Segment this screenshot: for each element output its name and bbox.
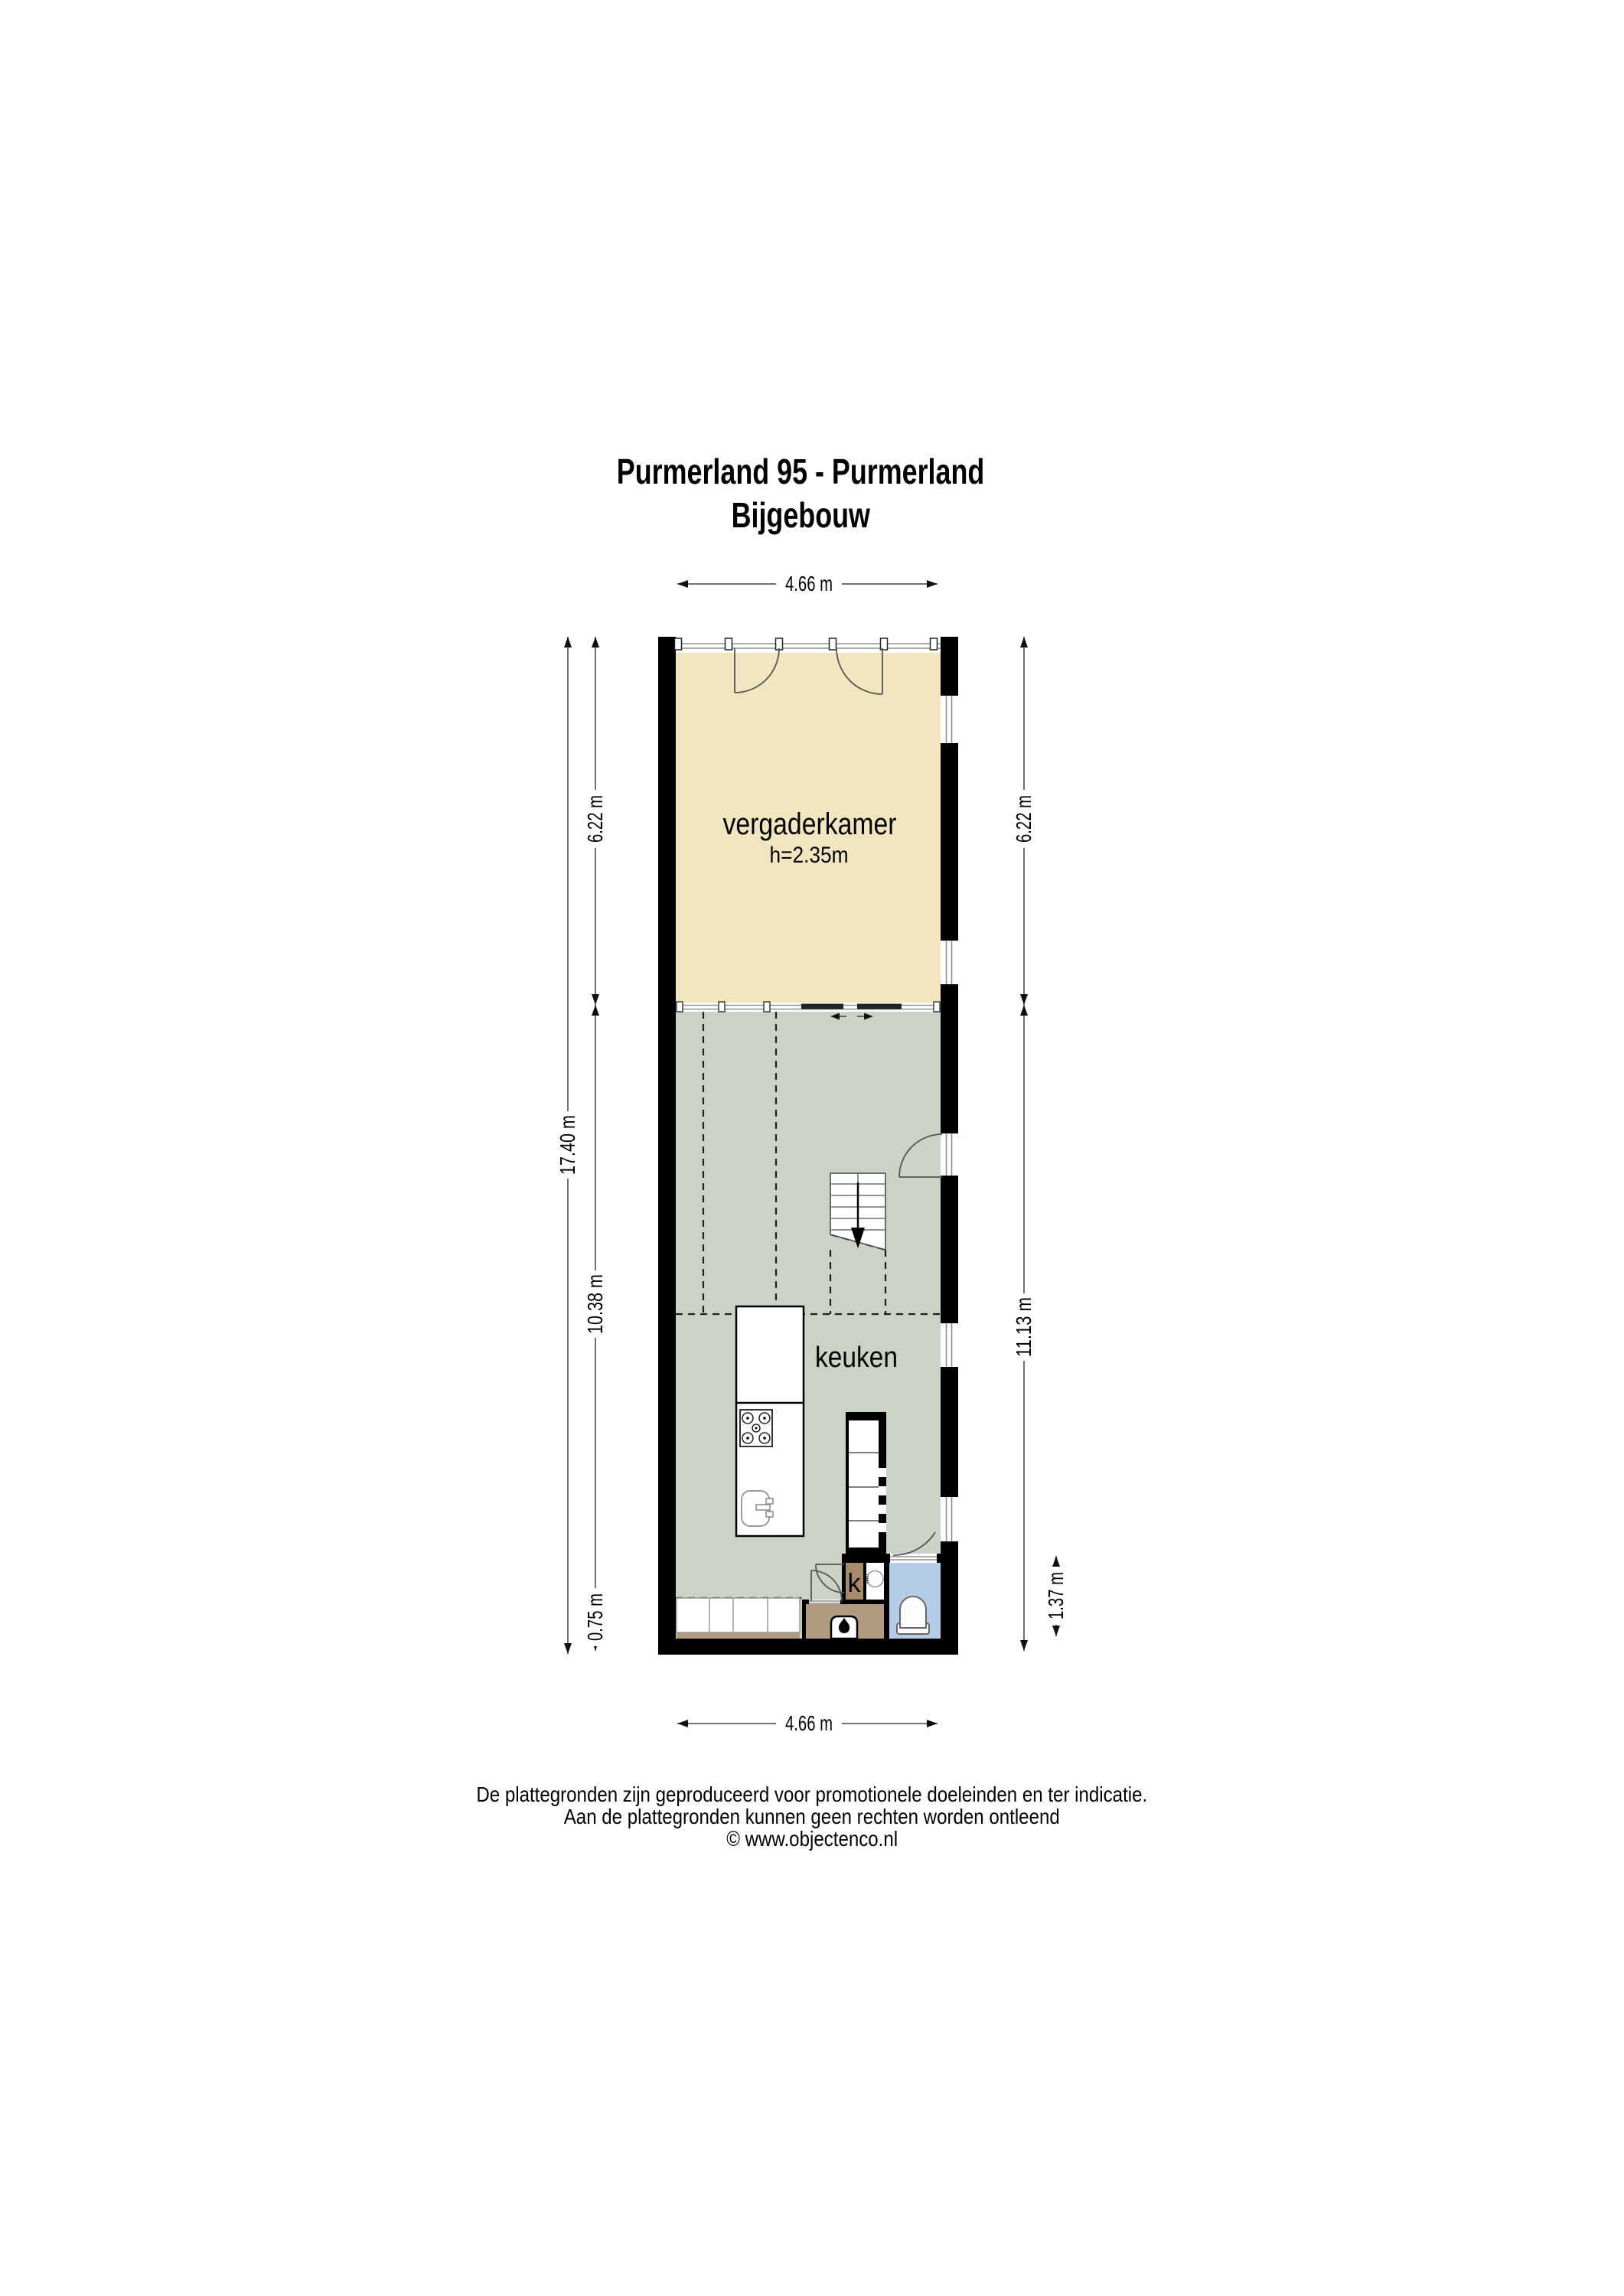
room-keuken (676, 1012, 941, 1639)
glazed-door-opening (941, 1130, 958, 1179)
appliance-counter (846, 1412, 886, 1558)
label-vergaderkamer: vergaderkamer (723, 807, 897, 841)
window (941, 1320, 958, 1370)
dim-left-upper: 6.22 m (583, 795, 607, 843)
sink-icon (742, 1491, 773, 1526)
dim-right-upper: 6.22 m (1012, 795, 1035, 843)
rear-door-opening (809, 1600, 840, 1604)
dimension-bath: 1.37 m (1044, 1556, 1068, 1636)
footer-line3: © www.objectenco.nl (726, 1828, 898, 1850)
dimension-left-inner: 6.22 m 10.38 m 0.75 m (583, 637, 607, 1651)
footer-line1: De plattegronden zijn geproduceerd voor … (477, 1783, 1148, 1805)
footer-disclaimer: De plattegronden zijn geproduceerd voor … (0, 1783, 1624, 1850)
label-keuken: keuken (815, 1342, 898, 1374)
dimension-right-inner: 6.22 m 11.13 m (1012, 637, 1035, 1651)
floorplan-drawing: wm (0, 0, 1624, 2296)
glass-front (675, 638, 941, 653)
dim-bath-depth: 1.37 m (1044, 1572, 1068, 1619)
dim-left-total: 17.40 m (556, 1115, 579, 1175)
counter-strip (677, 1632, 800, 1639)
toilet-icon (897, 1596, 929, 1634)
dimension-bottom: 4.66 m (677, 1711, 938, 1735)
stove-icon (831, 1616, 857, 1639)
dimension-top: 4.66 m (677, 572, 938, 595)
base-cabinets (677, 1598, 800, 1632)
room-fills (676, 640, 941, 1639)
window (941, 938, 958, 987)
window (941, 1494, 958, 1544)
gas-hob-icon (740, 1410, 772, 1446)
dim-top-width: 4.66 m (785, 572, 833, 595)
dimension-left-total: 17.40 m (556, 637, 579, 1654)
dim-right-lower: 11.13 m (1012, 1297, 1035, 1357)
footer-line2: Aan de plattegronden kunnen geen rechten… (564, 1805, 1060, 1828)
window (941, 693, 958, 746)
dim-left-lower: 0.75 m (583, 1593, 607, 1641)
label-height-note: h=2.35m (770, 843, 849, 868)
floorplan-page: Purmerland 95 - Purmerland Bijgebouw (0, 0, 1624, 2296)
dim-bottom-width: 4.66 m (785, 1711, 833, 1735)
label-closet: k (848, 1569, 862, 1598)
dim-left-middle: 10.38 m (583, 1274, 607, 1334)
kitchen-island (736, 1306, 804, 1536)
